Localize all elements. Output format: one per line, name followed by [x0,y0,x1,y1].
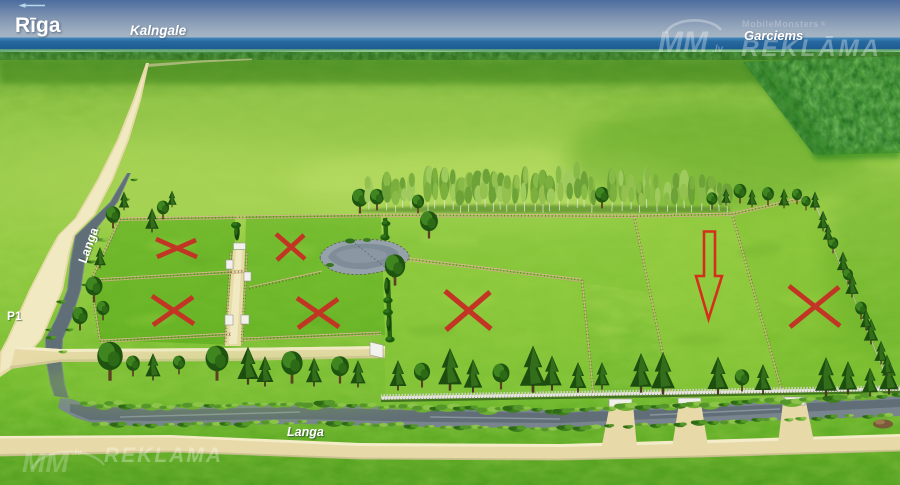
svg-text:.lv: .lv [72,447,83,457]
svg-text:Kalngale: Kalngale [130,23,187,38]
svg-text:MM: MM [22,447,69,478]
svg-text:Langa: Langa [287,425,324,439]
svg-text:P1: P1 [7,309,22,323]
svg-text:MM: MM [658,26,709,59]
svg-text:Garciems: Garciems [744,28,803,43]
svg-text:Rīga: Rīga [15,14,61,37]
svg-text:®: ® [821,21,826,28]
svg-text:.lv: .lv [712,44,725,55]
svg-text:REKLAMA: REKLAMA [104,444,223,467]
